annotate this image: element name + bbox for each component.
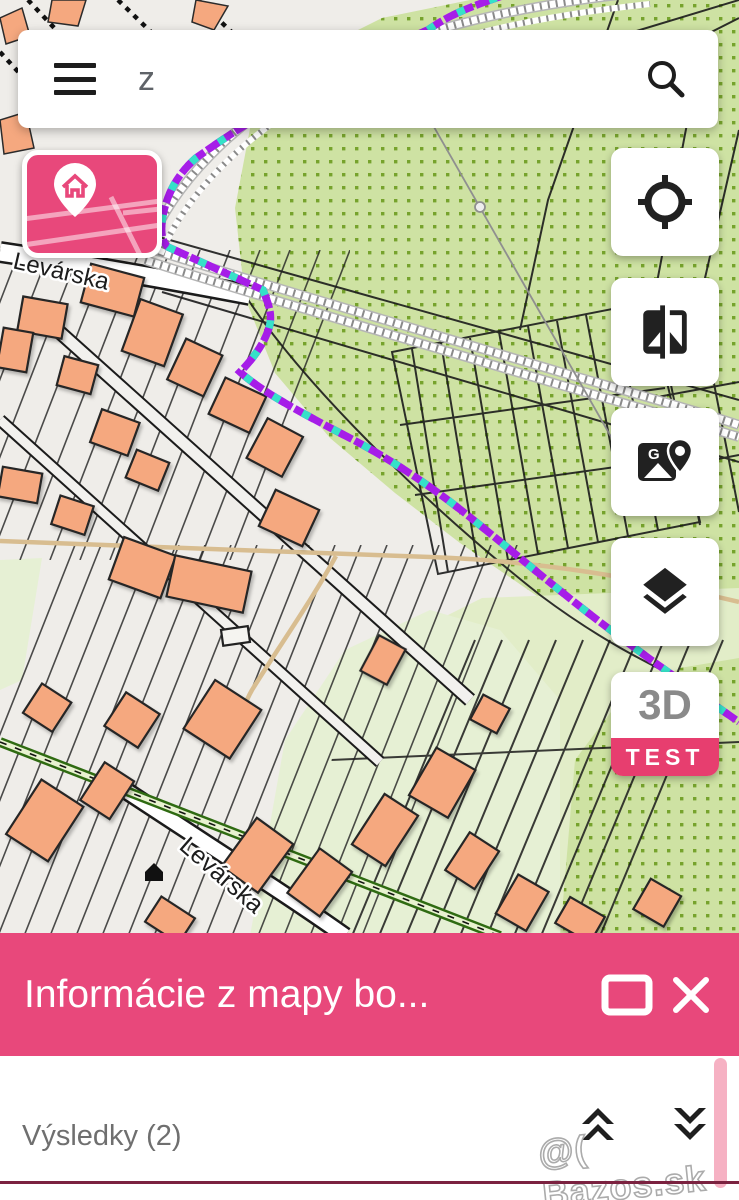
layers-icon: [636, 563, 694, 621]
gps-crosshair-icon: [636, 173, 694, 231]
search-button[interactable]: [636, 49, 696, 109]
search-icon: [644, 57, 688, 101]
double-chevron-down-icon: [666, 1100, 714, 1148]
expand-down-button[interactable]: [658, 1092, 722, 1156]
close-icon: [671, 975, 711, 1015]
google-maps-icon: G: [634, 431, 696, 493]
app-screen: Levárska Levárska z: [0, 0, 739, 1200]
basemap-thumbnail-button[interactable]: [22, 150, 162, 258]
collapse-up-button[interactable]: [566, 1092, 630, 1156]
menu-icon[interactable]: [54, 63, 96, 95]
layers-button[interactable]: [611, 538, 719, 646]
thumbnail-roads: [27, 197, 157, 253]
search-bar[interactable]: z: [18, 30, 718, 128]
google-maps-button[interactable]: G: [611, 408, 719, 516]
maximize-button[interactable]: [595, 963, 659, 1027]
compare-button[interactable]: [611, 278, 719, 386]
svg-text:G: G: [648, 446, 660, 463]
bottom-rule: [0, 1181, 739, 1184]
bottom-sheet: Informácie z mapy bo... Výsledky (2): [0, 933, 739, 1200]
bottom-sheet-body: Výsledky (2) @( Bazos.sk: [0, 1056, 739, 1200]
mode-3d-test-badge: TEST: [611, 738, 719, 776]
results-count-label: Výsledky (2): [22, 1120, 182, 1153]
close-button[interactable]: [659, 963, 723, 1027]
bottom-sheet-title: Informácie z mapy bo...: [24, 973, 595, 1017]
search-input[interactable]: z: [138, 60, 636, 99]
mode-3d-label: 3D: [611, 672, 719, 738]
compare-swipe-icon: [636, 303, 694, 361]
bottom-sheet-header[interactable]: Informácie z mapy bo...: [0, 933, 739, 1056]
double-chevron-up-icon: [574, 1100, 622, 1148]
mode-3d-button[interactable]: 3D TEST: [611, 672, 719, 776]
locate-button[interactable]: [611, 148, 719, 256]
sheet-scrollbar[interactable]: [714, 1058, 727, 1188]
maximize-icon: [601, 973, 653, 1017]
